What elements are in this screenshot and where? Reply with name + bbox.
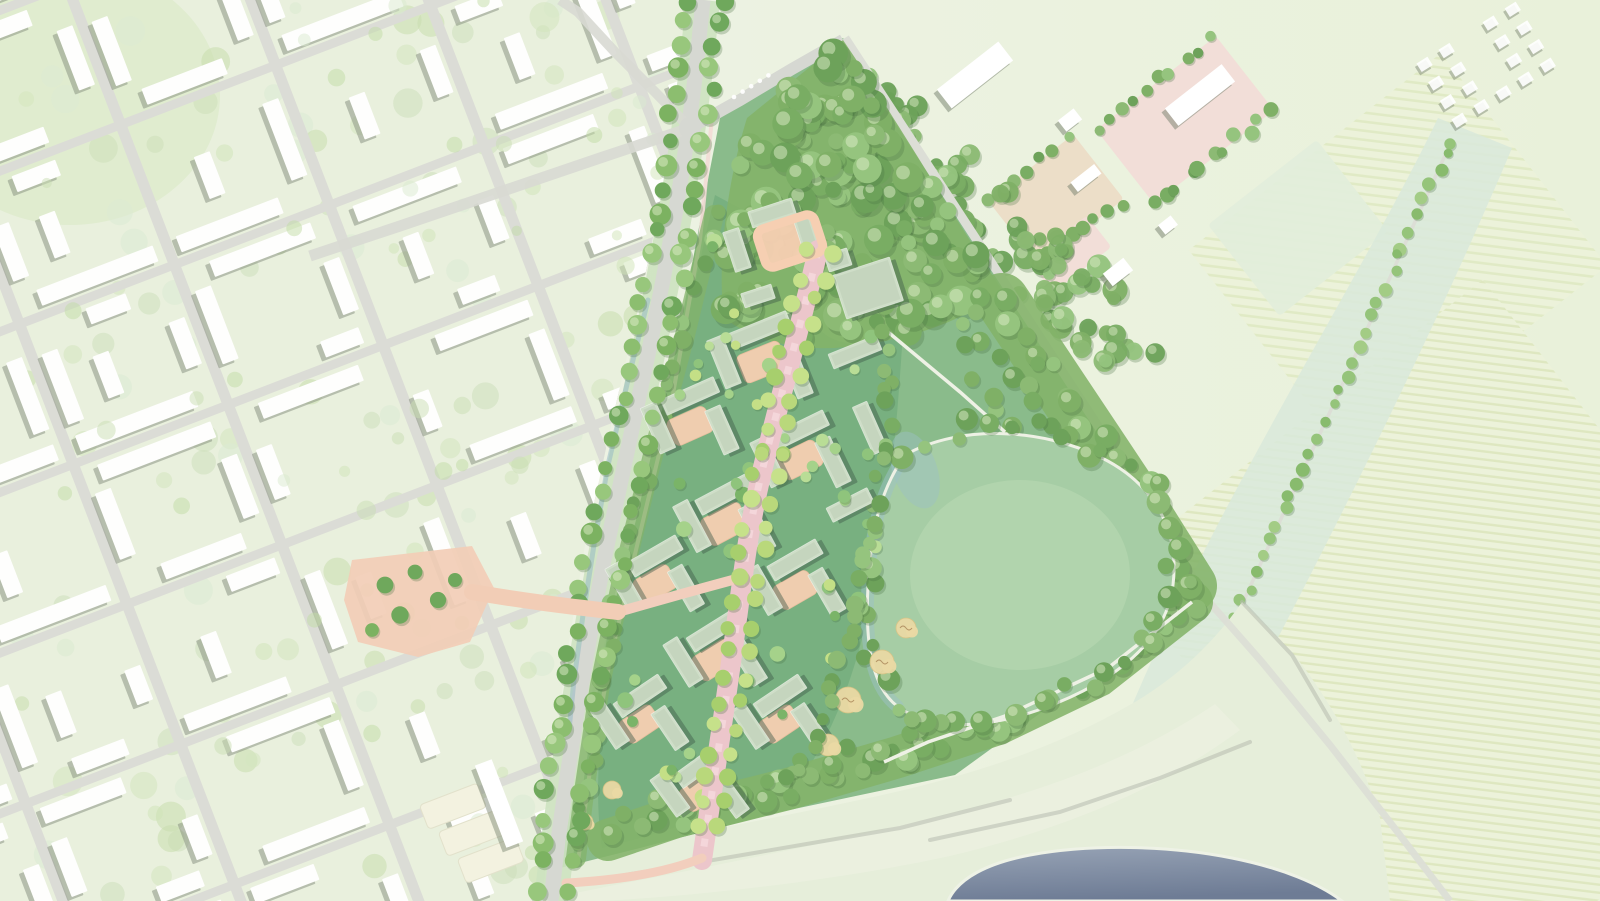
masterplan-map xyxy=(0,0,1600,901)
masterplan-svg xyxy=(0,0,1600,901)
meadow-highlight xyxy=(910,480,1130,670)
